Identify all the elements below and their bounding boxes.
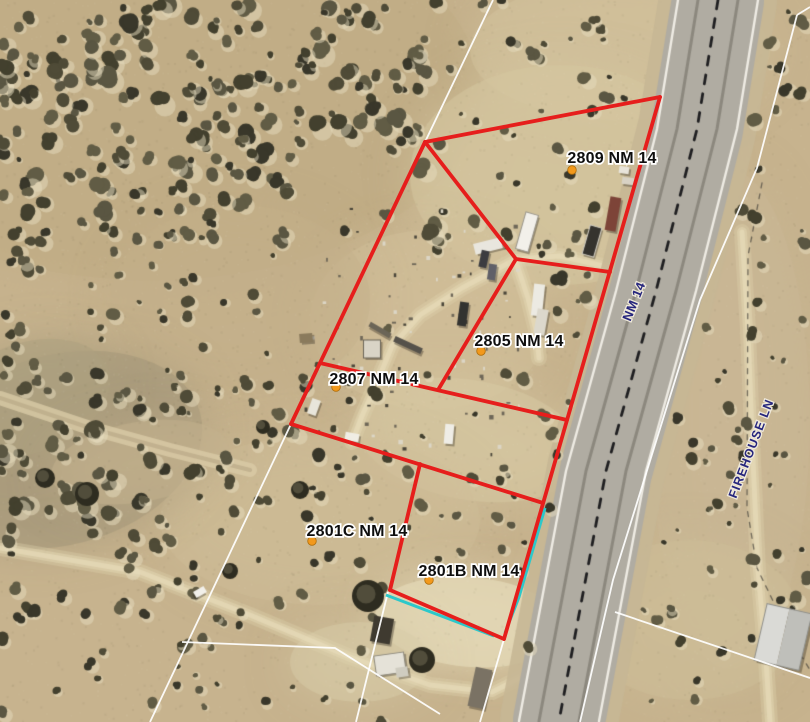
selected-parcel-boundary[interactable] — [438, 259, 516, 390]
parcel-boundary[interactable] — [615, 612, 810, 678]
selected-parcel-boundary[interactable] — [425, 142, 516, 259]
selected-parcel-boundary[interactable] — [516, 259, 610, 272]
parcel-label-2801B: 2801B NM 14 — [419, 563, 520, 580]
parcel-boundary[interactable] — [480, 639, 504, 722]
parcel-boundary[interactable] — [356, 592, 388, 722]
parcel-boundary[interactable] — [580, 15, 797, 722]
parcel-boundary[interactable] — [150, 424, 291, 722]
selected-parcels-layer — [291, 97, 660, 639]
selected-parcel-boundary[interactable] — [291, 424, 543, 503]
road-label-nm-14: NM 14 — [619, 279, 648, 323]
parcel-label-2807: 2807 NM 14 — [329, 371, 418, 388]
gis-overlay: 2809 NM 142805 NM 142807 NM 142801C NM 1… — [0, 0, 810, 722]
parcel-label-2805: 2805 NM 14 — [474, 333, 563, 350]
parcel-lines-layer — [150, 0, 810, 722]
overlay-boundary-line[interactable] — [386, 595, 494, 636]
selected-parcel-boundary[interactable] — [390, 590, 504, 639]
parcel-boundary[interactable] — [182, 642, 440, 714]
aerial-map-view[interactable]: 2809 NM 142805 NM 142807 NM 142801C NM 1… — [0, 0, 810, 722]
parcel-label-2809: 2809 NM 14 — [567, 150, 656, 167]
selected-parcel-boundary[interactable] — [425, 97, 660, 142]
parcel-boundary[interactable] — [425, 0, 493, 142]
road-label-firehouse-ln: FIREHOUSE LN — [726, 397, 777, 500]
parcel-boundary[interactable] — [797, 7, 810, 15]
parcel-label-2801C: 2801C NM 14 — [307, 523, 408, 540]
road-labels-layer: NM 14FIREHOUSE LN — [619, 279, 776, 500]
selected-parcel-boundary[interactable] — [504, 97, 660, 639]
